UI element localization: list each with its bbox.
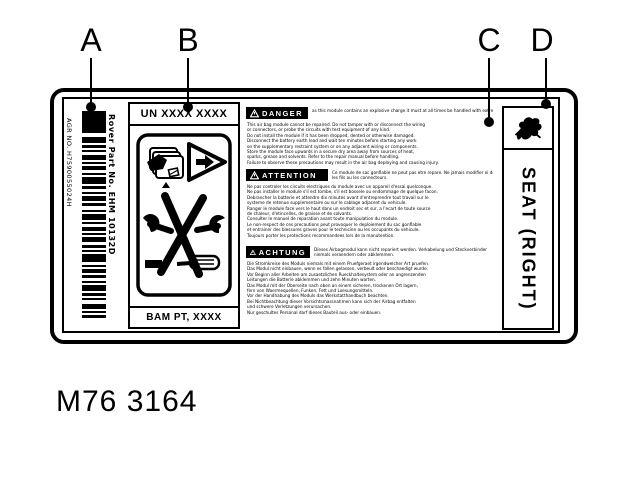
barcode-bar: [82, 111, 106, 133]
danger-body-text: This air bag module cannot be repaired. …: [247, 122, 493, 165]
callout-letter-a: A: [74, 22, 108, 59]
fine-print-line: niemals veraendern oder abklemmen.: [314, 252, 493, 257]
attention-header-label: ATTENTION: [262, 171, 317, 180]
achtung-header-label: ACHTUNG: [259, 248, 306, 257]
warning-triangle-small-icon: [250, 109, 259, 118]
fine-print-line: Failure to observe these precautions may…: [247, 160, 493, 165]
barcode-gap: [82, 318, 106, 321]
agr-number-text: AGR NO. H7590055024H: [65, 118, 73, 318]
callout-letter-b: B: [171, 22, 205, 59]
logo-icon: [510, 112, 546, 144]
logo-icon-cell: [504, 108, 552, 150]
pictogram-area: [130, 126, 238, 306]
figure-airbag-warning-label: A B C D AGR NO. H7590055024H Rover Part …: [0, 0, 640, 488]
danger-header-label: DANGER: [262, 109, 303, 118]
warning-triangle-small-icon: [250, 171, 259, 180]
fine-print-line: Nur geschultes Personal darf dieses Baut…: [247, 310, 493, 315]
pictogram-panel: UN XXXX XXXX: [128, 102, 240, 329]
figure-caption: M76 3164: [56, 385, 197, 419]
seat-text-cell: SEAT (RIGHT): [504, 150, 552, 328]
danger-header-bar: DANGER: [246, 107, 308, 119]
seat-side-panel: SEAT (RIGHT): [502, 106, 554, 330]
achtung-header-bar: ACHTUNG: [246, 246, 310, 258]
airbag-pictogram-icon: [135, 132, 233, 300]
fine-print-line: les fils ou les connecteurs.: [332, 175, 493, 180]
achtung-side-text: Dieses Airbagmodul kann nicht repariert …: [314, 247, 493, 258]
callout-letter-d: D: [525, 22, 559, 59]
warning-triangle-small-icon: [250, 248, 256, 257]
seat-position-text: SEAT (RIGHT): [518, 167, 539, 311]
barcode-bar: [82, 254, 106, 262]
attention-header-bar: ATTENTION: [246, 169, 328, 181]
barcode: [82, 111, 106, 321]
danger-side-text: as this module contains an explosive cha…: [312, 108, 493, 113]
fine-print-line: as this module contains an explosive cha…: [312, 108, 493, 113]
attention-body-text: Ne pas controler les circuits electrique…: [247, 184, 493, 238]
achtung-body-text: Die Stromkreise des Moduls niemals mit e…: [247, 261, 493, 315]
attention-side-text: Ce module de sac gonflable ne peut pas e…: [332, 170, 493, 181]
warning-triangle-icon: [189, 144, 225, 180]
airbag-module-icon: [147, 148, 183, 188]
warning-text-block: DANGER as this module contains an explos…: [246, 0, 493, 488]
bam-code-box: BAM PT, XXXX: [130, 306, 238, 327]
barcode-bar: [82, 177, 106, 184]
part-number-text: Rover Part No. EHM 10132D: [107, 114, 116, 324]
un-code-box: UN XXXX XXXX: [130, 104, 238, 126]
fine-print-line: Toujours porter les protections recomman…: [247, 233, 493, 238]
no-tools-icon: [143, 196, 225, 274]
